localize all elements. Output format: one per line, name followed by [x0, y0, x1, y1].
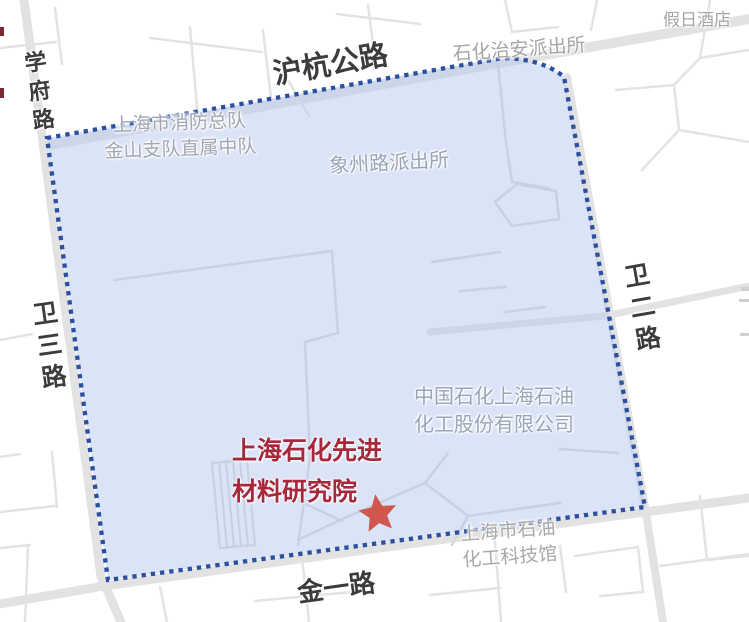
map-graphics — [0, 0, 749, 622]
highlight-region-fill — [47, 58, 645, 580]
map-canvas[interactable]: 沪杭公路 学府路 卫三路 卫二路 金一路 假日酒店 石化治安派出所 上海市消防总… — [0, 0, 749, 622]
